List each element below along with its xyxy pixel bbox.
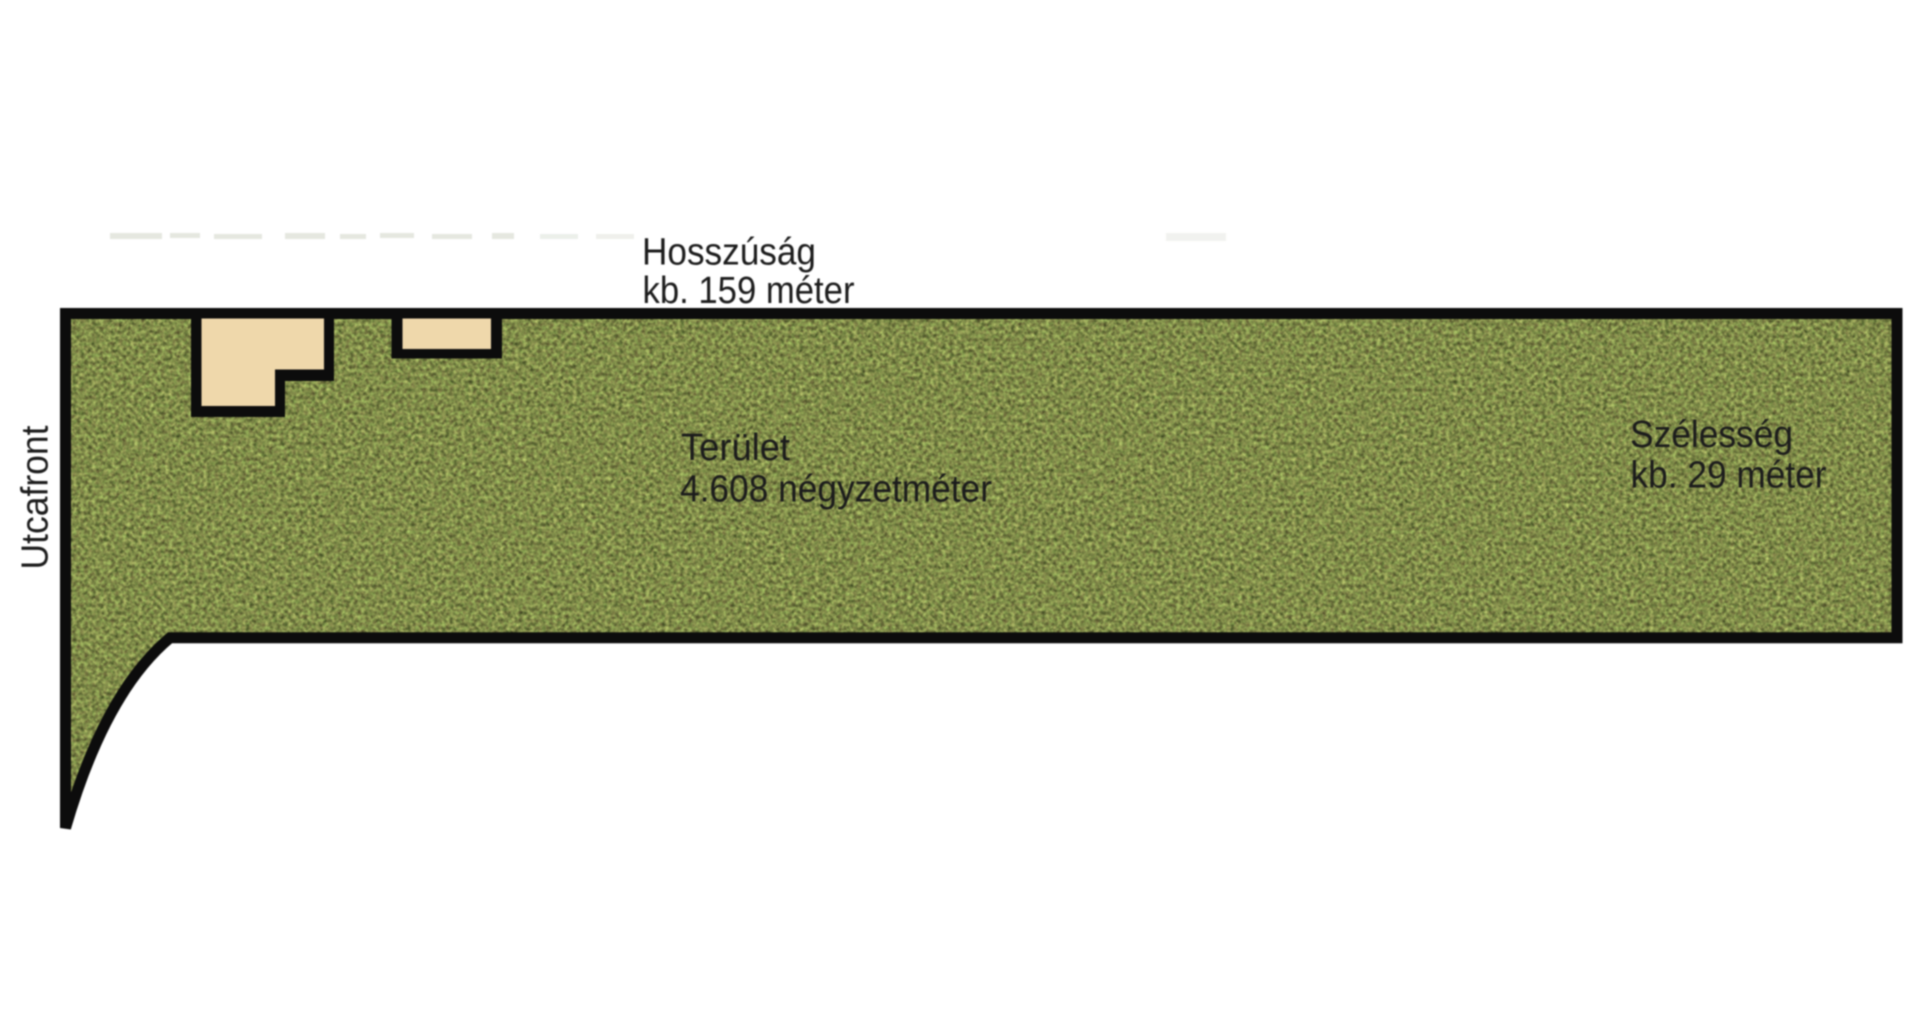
svg-text:Hosszúság: Hosszúság (642, 232, 816, 274)
svg-text:Terület: Terület (681, 427, 790, 469)
svg-text:4.608 négyzetméter: 4.608 négyzetméter (680, 469, 992, 511)
svg-text:kb. 29 méter: kb. 29 méter (1631, 455, 1827, 497)
svg-text:Szélesség: Szélesség (1630, 414, 1793, 456)
svg-text:Utcafront: Utcafront (15, 425, 57, 569)
svg-text:kb. 159 méter: kb. 159 méter (643, 270, 855, 312)
